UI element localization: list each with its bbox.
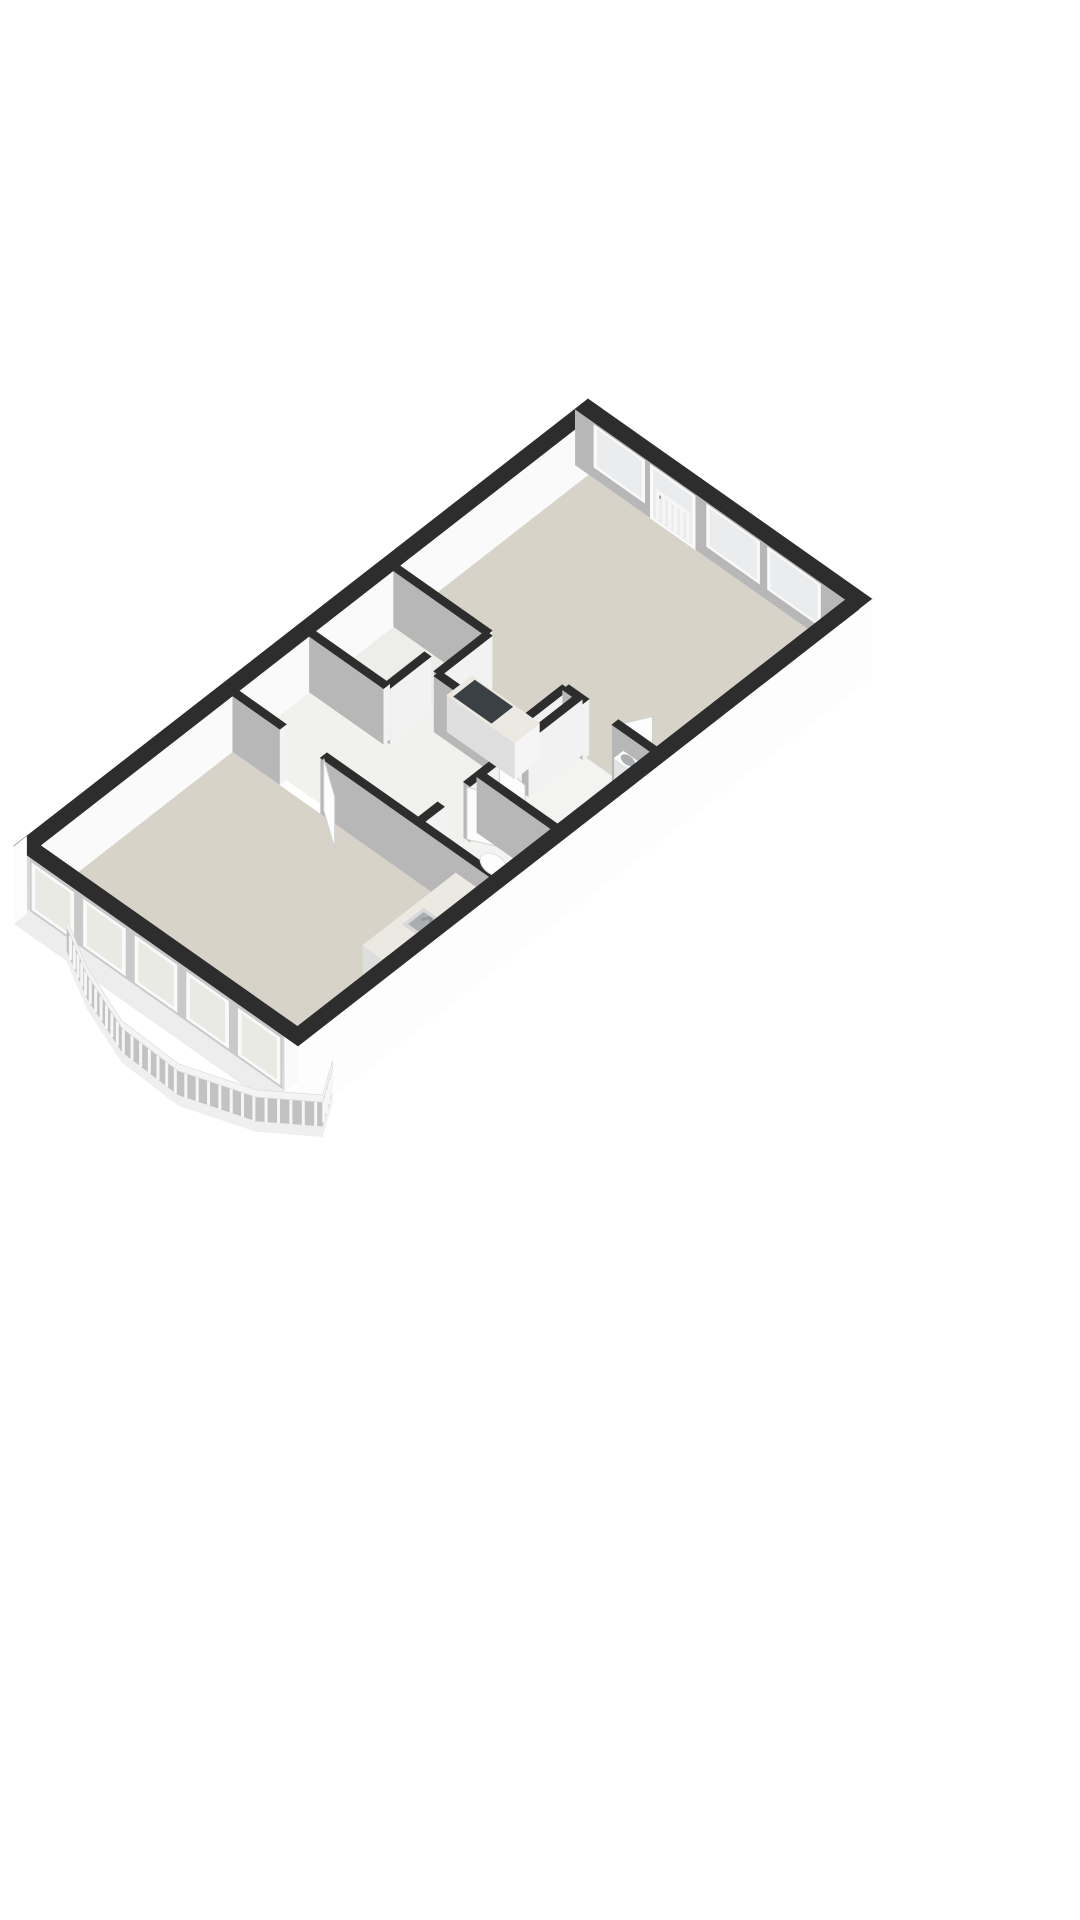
livingne-sw-lower-side [583,699,590,760]
ext-sw-cap [14,836,27,924]
storage-sw-side [384,684,391,745]
livingsw-ne-side [280,724,286,785]
floorplan-3d-render [0,0,1080,1920]
floorplan-canvas [0,0,1080,1920]
sw-post [282,1035,284,1091]
